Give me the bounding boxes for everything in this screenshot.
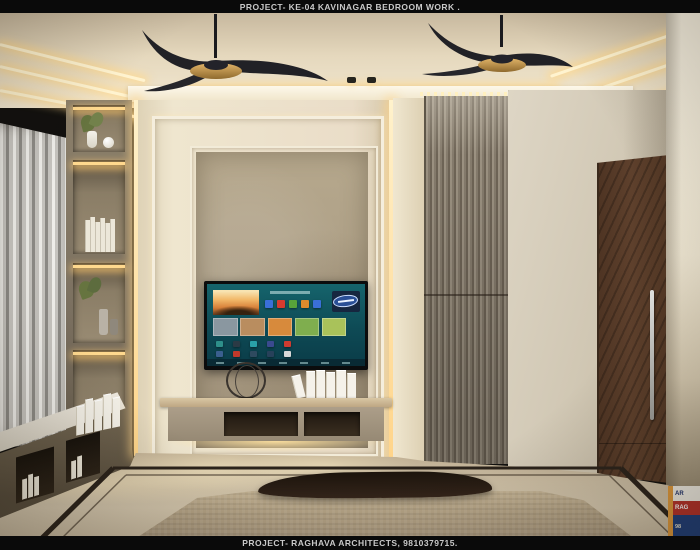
shelf-niche: [73, 105, 125, 152]
tv-app-row-1: [216, 341, 301, 347]
samsung-logo: [333, 294, 360, 309]
tv-app-tile: [313, 300, 321, 308]
badge-line-2: RAG: [673, 501, 700, 515]
book: [316, 370, 325, 398]
tv-app-tile: [233, 341, 240, 347]
footer-title: PROJECT- RAGHAVA ARCHITECTS, 9810379715.: [242, 538, 457, 548]
tv-featured-silhouette: [213, 306, 259, 316]
tv-app-tile: [216, 341, 223, 347]
tv-title-text: [270, 291, 310, 294]
ceiling-fan-left: [128, 14, 338, 98]
books-on-console: [292, 370, 362, 398]
led-strip: [73, 265, 125, 268]
tv-app-tile: [277, 300, 285, 308]
book: [112, 396, 120, 428]
shelf-niche: [73, 263, 125, 343]
book: [326, 372, 335, 398]
book: [85, 398, 93, 434]
tv-app-tile: [250, 351, 257, 357]
vase: [110, 319, 118, 335]
vase: [87, 131, 97, 148]
decor-wire-lamp-inner: [235, 365, 259, 398]
architect-badge: AR RAG 98: [668, 486, 700, 538]
tv-app-tile: [233, 351, 240, 357]
led-strip: [73, 107, 125, 110]
door: [597, 155, 669, 483]
tv-mid-card-row: [213, 318, 360, 335]
footer-bar: PROJECT- RAGHAVA ARCHITECTS, 9810379715.: [0, 536, 700, 550]
led-strip: [73, 352, 125, 355]
ornament: [103, 137, 114, 148]
console-niche: [224, 412, 298, 436]
ceiling-spotlight: [367, 77, 376, 83]
tv-featured-card: [213, 290, 259, 315]
tv-app-tile: [267, 341, 274, 347]
tv-app-row-2: [216, 351, 301, 357]
tv-app-tile: [213, 318, 237, 335]
led-strip: [73, 162, 125, 165]
curtain: [0, 118, 66, 448]
wall-pilaster: [393, 98, 424, 462]
door-seam: [599, 443, 669, 444]
tv-app-tile: [267, 351, 274, 357]
tv-app-tile: [322, 318, 346, 335]
badge-line-1: AR: [673, 486, 700, 501]
ceiling-spotlight: [347, 77, 356, 83]
book: [347, 373, 356, 398]
screenshot-root: PROJECT- KE-04 KAVINAGAR BEDROOM WORK .: [0, 0, 700, 550]
tv-app-tile: [295, 318, 319, 335]
header-bar: PROJECT- KE-04 KAVINAGAR BEDROOM WORK .: [0, 0, 700, 13]
book: [76, 405, 84, 436]
book: [103, 393, 111, 430]
tv-app-tile: [301, 300, 309, 308]
shelf-niche: [73, 160, 125, 254]
tv-console-top: [160, 398, 392, 407]
tv-app-tile: [284, 341, 291, 347]
tv-app-tile: [265, 300, 273, 308]
fluted-panel: [424, 96, 510, 464]
plant: [87, 275, 104, 294]
console-niche: [304, 412, 360, 436]
book: [110, 219, 115, 252]
book: [94, 399, 102, 432]
tv: [204, 281, 368, 370]
tv-screen: [207, 284, 365, 366]
tv-top-icon-row: [265, 300, 325, 308]
tv-brand-tile: [332, 291, 360, 312]
badge-line-3: 98: [673, 515, 700, 538]
tv-app-tile: [289, 300, 297, 308]
book: [291, 374, 305, 398]
tv-bottom-bar: [207, 359, 365, 366]
door-handle: [650, 290, 654, 420]
header-title: PROJECT- KE-04 KAVINAGAR BEDROOM WORK .: [240, 2, 460, 12]
book: [336, 370, 346, 398]
vase: [99, 309, 108, 335]
decor-wire-lamp: [226, 362, 266, 399]
fluted-panel-seam: [424, 294, 510, 296]
tv-app-tile: [284, 351, 291, 357]
tv-console: [168, 407, 384, 441]
tv-app-tile: [216, 351, 223, 357]
ceiling-fan-right: [388, 15, 576, 89]
book: [306, 371, 315, 398]
tv-app-tile: [268, 318, 292, 335]
tv-app-tile: [240, 318, 264, 335]
tv-app-tile: [250, 341, 257, 347]
